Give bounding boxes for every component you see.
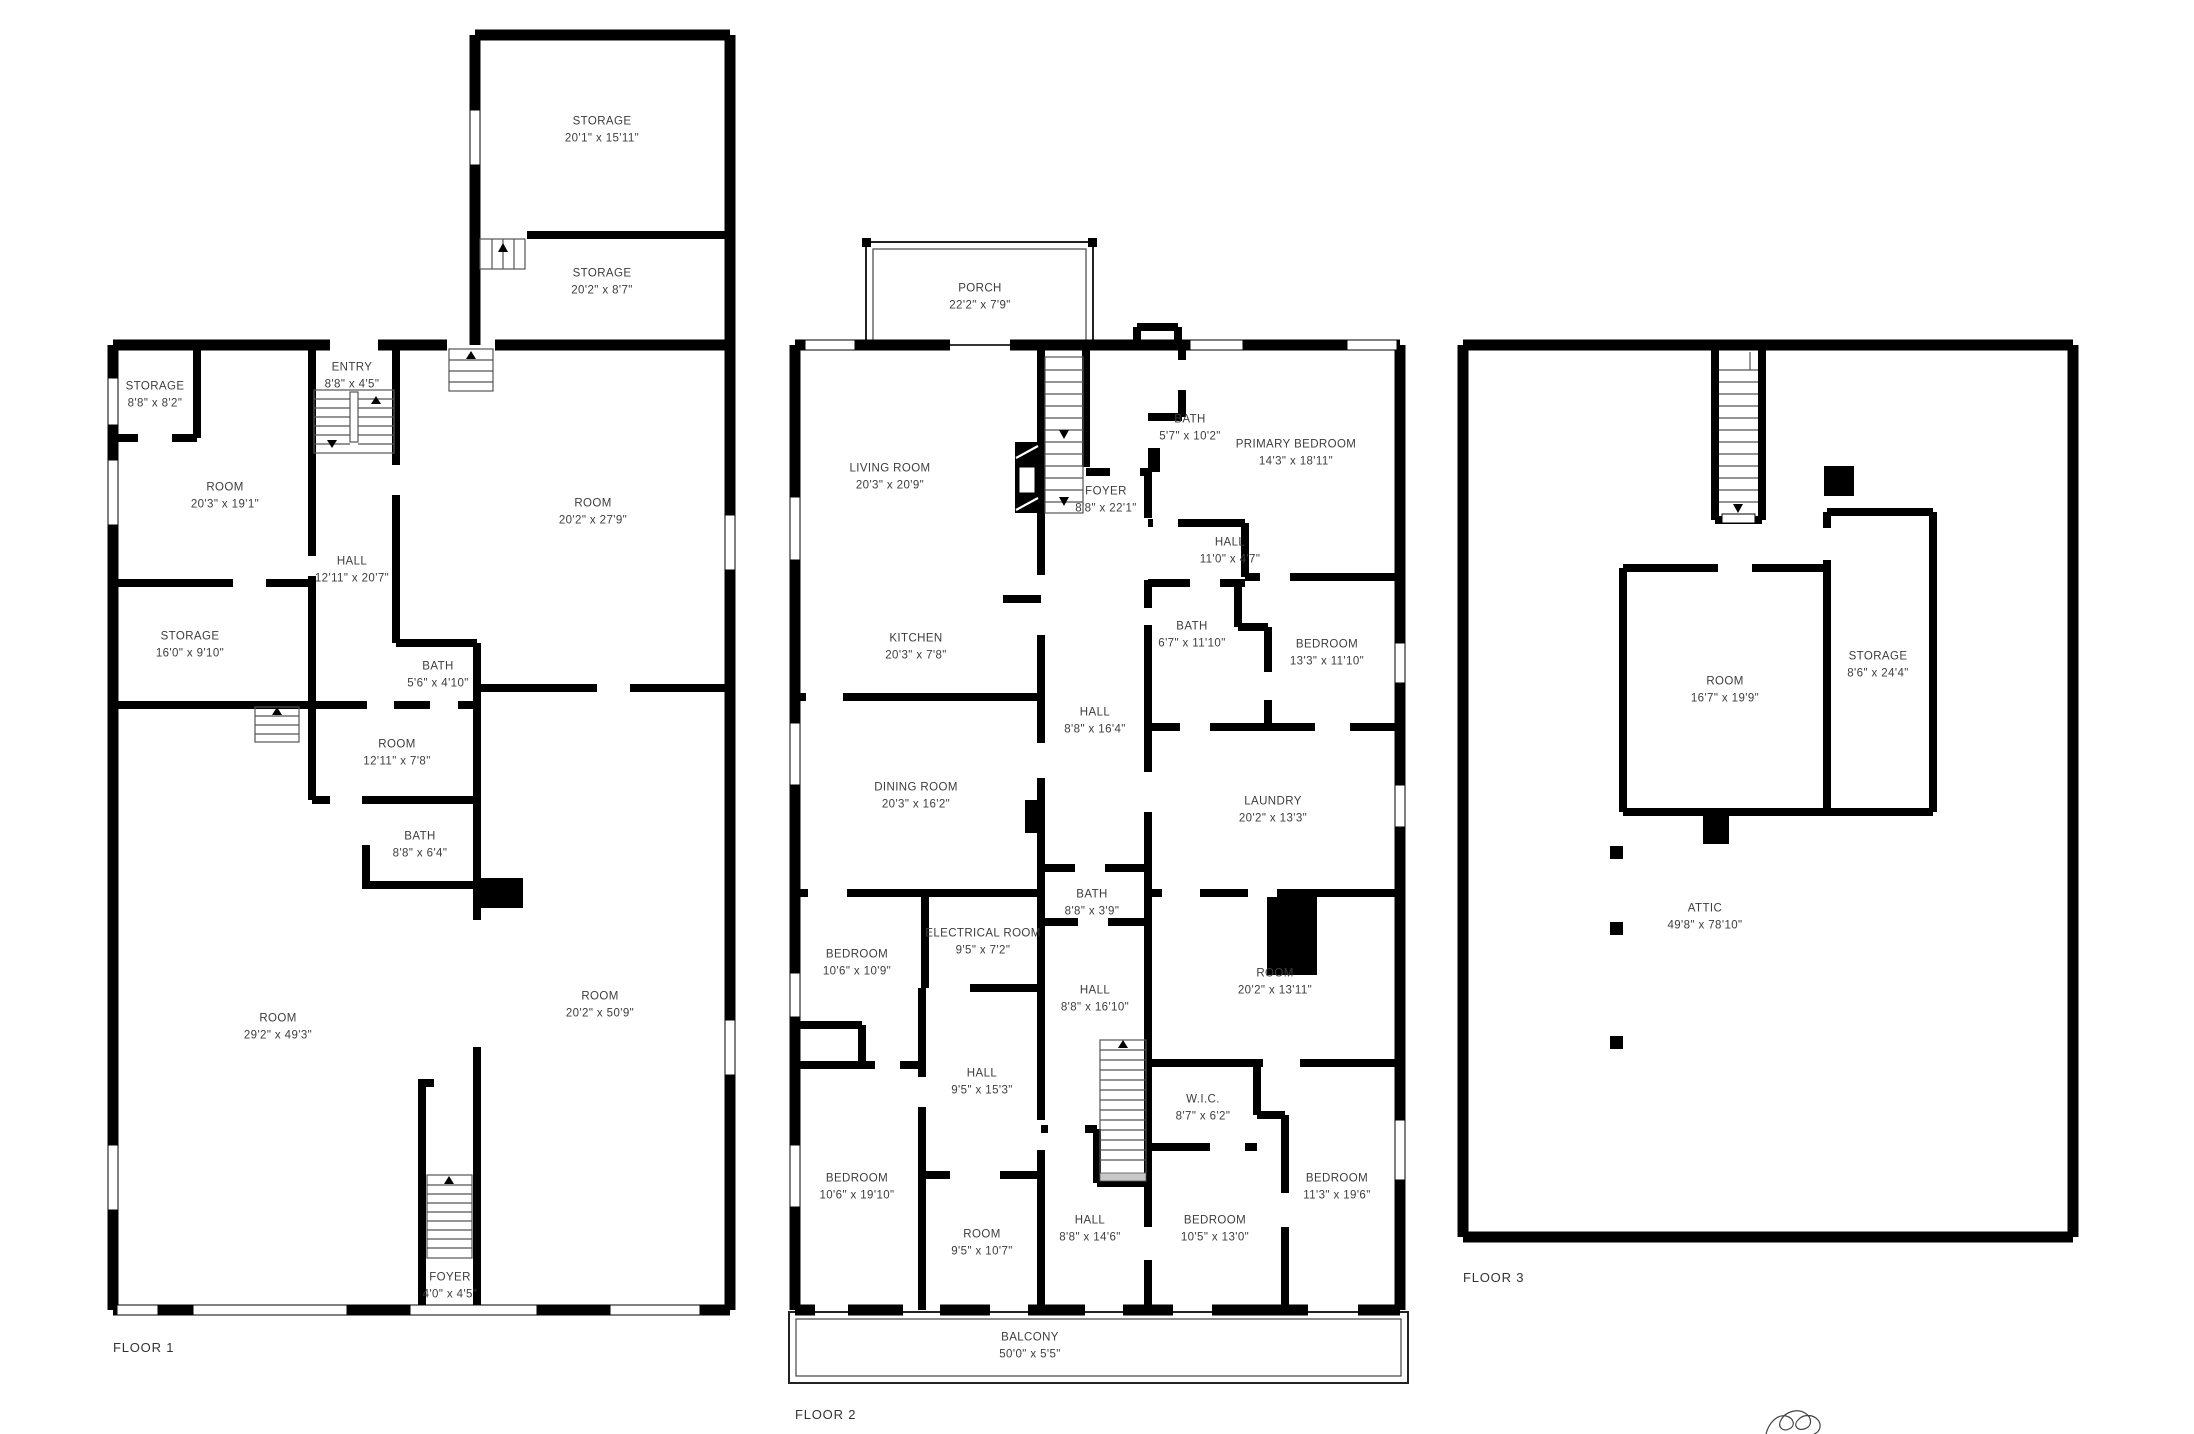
room-dims: 10'5" x 13'0"	[1181, 1229, 1249, 1246]
room-name: PRIMARY BEDROOM	[1236, 436, 1357, 453]
room-dims: 12'11" x 7'8"	[363, 753, 430, 770]
room-dims: 49'8" x 78'10"	[1667, 917, 1742, 934]
room-label: HALL11'0" x 4'7"	[1200, 534, 1261, 567]
room-label: BATH6'7" x 11'10"	[1158, 618, 1225, 651]
room-name: BATH	[407, 658, 468, 675]
room-label: BEDROOM10'6" x 19'10"	[819, 1170, 894, 1203]
room-label: STORAGE8'8" x 8'2"	[126, 378, 185, 411]
room-label: BATH5'7" x 10'2"	[1159, 411, 1220, 444]
room-dims: 11'3" x 19'6"	[1303, 1187, 1370, 1204]
room-name: STORAGE	[1847, 648, 1908, 665]
room-name: ATTIC	[1667, 900, 1742, 917]
floorplan-page: STORAGE20'1" x 15'11" STORAGE20'2" x 8'7…	[0, 0, 2194, 1434]
room-name: BATH	[1065, 886, 1120, 903]
room-label: FOYER8'8" x 22'1"	[1075, 483, 1136, 516]
room-label: ELECTRICAL ROOM9'5" x 7'2"	[925, 925, 1040, 958]
room-label: HALL8'8" x 16'4"	[1064, 704, 1125, 737]
room-name: HALL	[315, 553, 389, 570]
room-label: HALL9'5" x 15'3"	[951, 1065, 1012, 1098]
room-dims: 22'2" x 7'9"	[949, 297, 1010, 314]
room-dims: 20'2" x 50'9"	[566, 1005, 634, 1022]
room-label: ROOM20'2" x 27'9"	[559, 495, 627, 528]
room-dims: 9'5" x 7'2"	[925, 942, 1040, 959]
room-name: ROOM	[1691, 673, 1759, 690]
room-dims: 16'0" x 9'10"	[156, 645, 224, 662]
room-label: BATH8'8" x 3'9"	[1065, 886, 1120, 919]
room-name: BEDROOM	[1303, 1170, 1370, 1187]
room-name: PORCH	[949, 280, 1010, 297]
room-dims: 8'8" x 6'4"	[393, 845, 448, 862]
room-dims: 8'8" x 14'6"	[1059, 1229, 1120, 1246]
room-name: ROOM	[1238, 965, 1312, 982]
room-dims: 5'7" x 10'2"	[1159, 428, 1220, 445]
room-name: HALL	[1059, 1212, 1120, 1229]
room-dims: 8'8" x 16'10"	[1061, 999, 1129, 1016]
room-name: STORAGE	[565, 113, 639, 130]
room-dims: 9'5" x 10'7"	[951, 1243, 1012, 1260]
room-name: ROOM	[566, 988, 634, 1005]
room-dims: 13'3" x 11'10"	[1290, 653, 1364, 670]
room-name: HALL	[1061, 982, 1129, 999]
room-dims: 20'3" x 16'2"	[874, 796, 958, 813]
room-label: BEDROOM10'5" x 13'0"	[1181, 1212, 1249, 1245]
room-dims: 4'0" x 4'5"	[423, 1286, 478, 1303]
room-label: PORCH22'2" x 7'9"	[949, 280, 1010, 313]
room-label: ATTIC49'8" x 78'10"	[1667, 900, 1742, 933]
room-name: W.I.C.	[1176, 1091, 1231, 1108]
room-dims: 20'3" x 7'8"	[885, 647, 946, 664]
room-name: BEDROOM	[1290, 636, 1364, 653]
room-label: STORAGE8'6" x 24'4"	[1847, 648, 1908, 681]
room-label: BEDROOM13'3" x 11'10"	[1290, 636, 1364, 669]
room-name: ENTRY	[325, 359, 380, 376]
room-name: BATH	[1159, 411, 1220, 428]
room-dims: 8'6" x 24'4"	[1847, 665, 1908, 682]
room-label: KITCHEN20'3" x 7'8"	[885, 630, 946, 663]
room-name: STORAGE	[571, 265, 632, 282]
room-dims: 29'2" x 49'3"	[244, 1027, 312, 1044]
room-dims: 8'7" x 6'2"	[1176, 1108, 1231, 1125]
room-name: BALCONY	[999, 1329, 1060, 1346]
room-label: ROOM12'11" x 7'8"	[363, 736, 430, 769]
room-dims: 8'8" x 8'2"	[126, 395, 185, 412]
room-label: DINING ROOM20'3" x 16'2"	[874, 779, 958, 812]
room-name: ROOM	[244, 1010, 312, 1027]
room-label: HALL12'11" x 20'7"	[315, 553, 389, 586]
room-label: BATH8'8" x 6'4"	[393, 828, 448, 861]
room-label: LIVING ROOM20'3" x 20'9"	[849, 460, 930, 493]
room-label: HALL8'8" x 16'10"	[1061, 982, 1129, 1015]
room-label: BALCONY50'0" x 5'5"	[999, 1329, 1060, 1362]
floor-3-label: FLOOR 3	[1463, 1270, 1524, 1285]
room-dims: 20'1" x 15'11"	[565, 130, 639, 147]
room-label: BEDROOM10'6" x 10'9"	[823, 946, 891, 979]
room-name: FOYER	[1075, 483, 1136, 500]
room-name: HALL	[1064, 704, 1125, 721]
floor-1-label: FLOOR 1	[113, 1340, 174, 1355]
room-dims: 10'6" x 10'9"	[823, 963, 891, 980]
room-label: HALL8'8" x 14'6"	[1059, 1212, 1120, 1245]
room-label: ROOM20'3" x 19'1"	[191, 479, 259, 512]
room-dims: 8'8" x 3'9"	[1065, 903, 1120, 920]
room-dims: 5'6" x 4'10"	[407, 675, 468, 692]
room-label: LAUNDRY20'2" x 13'3"	[1239, 793, 1307, 826]
room-label: ROOM29'2" x 49'3"	[244, 1010, 312, 1043]
room-name: DINING ROOM	[874, 779, 958, 796]
room-label: STORAGE16'0" x 9'10"	[156, 628, 224, 661]
room-label: STORAGE20'1" x 15'11"	[565, 113, 639, 146]
room-label: BEDROOM11'3" x 19'6"	[1303, 1170, 1370, 1203]
room-label: ROOM9'5" x 10'7"	[951, 1226, 1012, 1259]
room-dims: 8'8" x 16'4"	[1064, 721, 1125, 738]
room-label: ROOM16'7" x 19'9"	[1691, 673, 1759, 706]
room-dims: 11'0" x 4'7"	[1200, 551, 1261, 568]
room-label: ROOM20'2" x 50'9"	[566, 988, 634, 1021]
room-dims: 12'11" x 20'7"	[315, 570, 389, 587]
room-name: FOYER	[423, 1269, 478, 1286]
room-label: BATH5'6" x 4'10"	[407, 658, 468, 691]
room-name: ELECTRICAL ROOM	[925, 925, 1040, 942]
room-label: ROOM20'2" x 13'11"	[1238, 965, 1312, 998]
room-name: ROOM	[191, 479, 259, 496]
room-name: BEDROOM	[823, 946, 891, 963]
room-name: BATH	[1158, 618, 1225, 635]
room-dims: 14'3" x 18'11"	[1236, 453, 1357, 470]
room-name: HALL	[951, 1065, 1012, 1082]
room-name: LIVING ROOM	[849, 460, 930, 477]
room-name: HALL	[1200, 534, 1261, 551]
room-name: ROOM	[559, 495, 627, 512]
room-name: LAUNDRY	[1239, 793, 1307, 810]
room-dims: 20'2" x 13'11"	[1238, 982, 1312, 999]
room-label: ENTRY8'8" x 4'5"	[325, 359, 380, 392]
room-name: STORAGE	[156, 628, 224, 645]
room-name: STORAGE	[126, 378, 185, 395]
floor-2-label: FLOOR 2	[795, 1407, 856, 1422]
room-dims: 8'8" x 4'5"	[325, 376, 380, 393]
room-name: ROOM	[363, 736, 430, 753]
room-dims: 20'2" x 27'9"	[559, 512, 627, 529]
room-dims: 16'7" x 19'9"	[1691, 690, 1759, 707]
room-dims: 20'2" x 13'3"	[1239, 810, 1307, 827]
room-label: FOYER4'0" x 4'5"	[423, 1269, 478, 1302]
room-dims: 10'6" x 19'10"	[819, 1187, 894, 1204]
room-dims: 20'3" x 20'9"	[849, 477, 930, 494]
room-label: STORAGE20'2" x 8'7"	[571, 265, 632, 298]
room-name: BEDROOM	[819, 1170, 894, 1187]
room-name: ROOM	[951, 1226, 1012, 1243]
room-name: KITCHEN	[885, 630, 946, 647]
room-dims: 50'0" x 5'5"	[999, 1346, 1060, 1363]
room-name: BATH	[393, 828, 448, 845]
room-dims: 6'7" x 11'10"	[1158, 635, 1225, 652]
room-dims: 20'2" x 8'7"	[571, 282, 632, 299]
room-label: W.I.C.8'7" x 6'2"	[1176, 1091, 1231, 1124]
labels-layer: STORAGE20'1" x 15'11" STORAGE20'2" x 8'7…	[0, 0, 2194, 1434]
room-dims: 20'3" x 19'1"	[191, 496, 259, 513]
room-label: PRIMARY BEDROOM14'3" x 18'11"	[1236, 436, 1357, 469]
room-name: BEDROOM	[1181, 1212, 1249, 1229]
room-dims: 9'5" x 15'3"	[951, 1082, 1012, 1099]
room-dims: 8'8" x 22'1"	[1075, 500, 1136, 517]
